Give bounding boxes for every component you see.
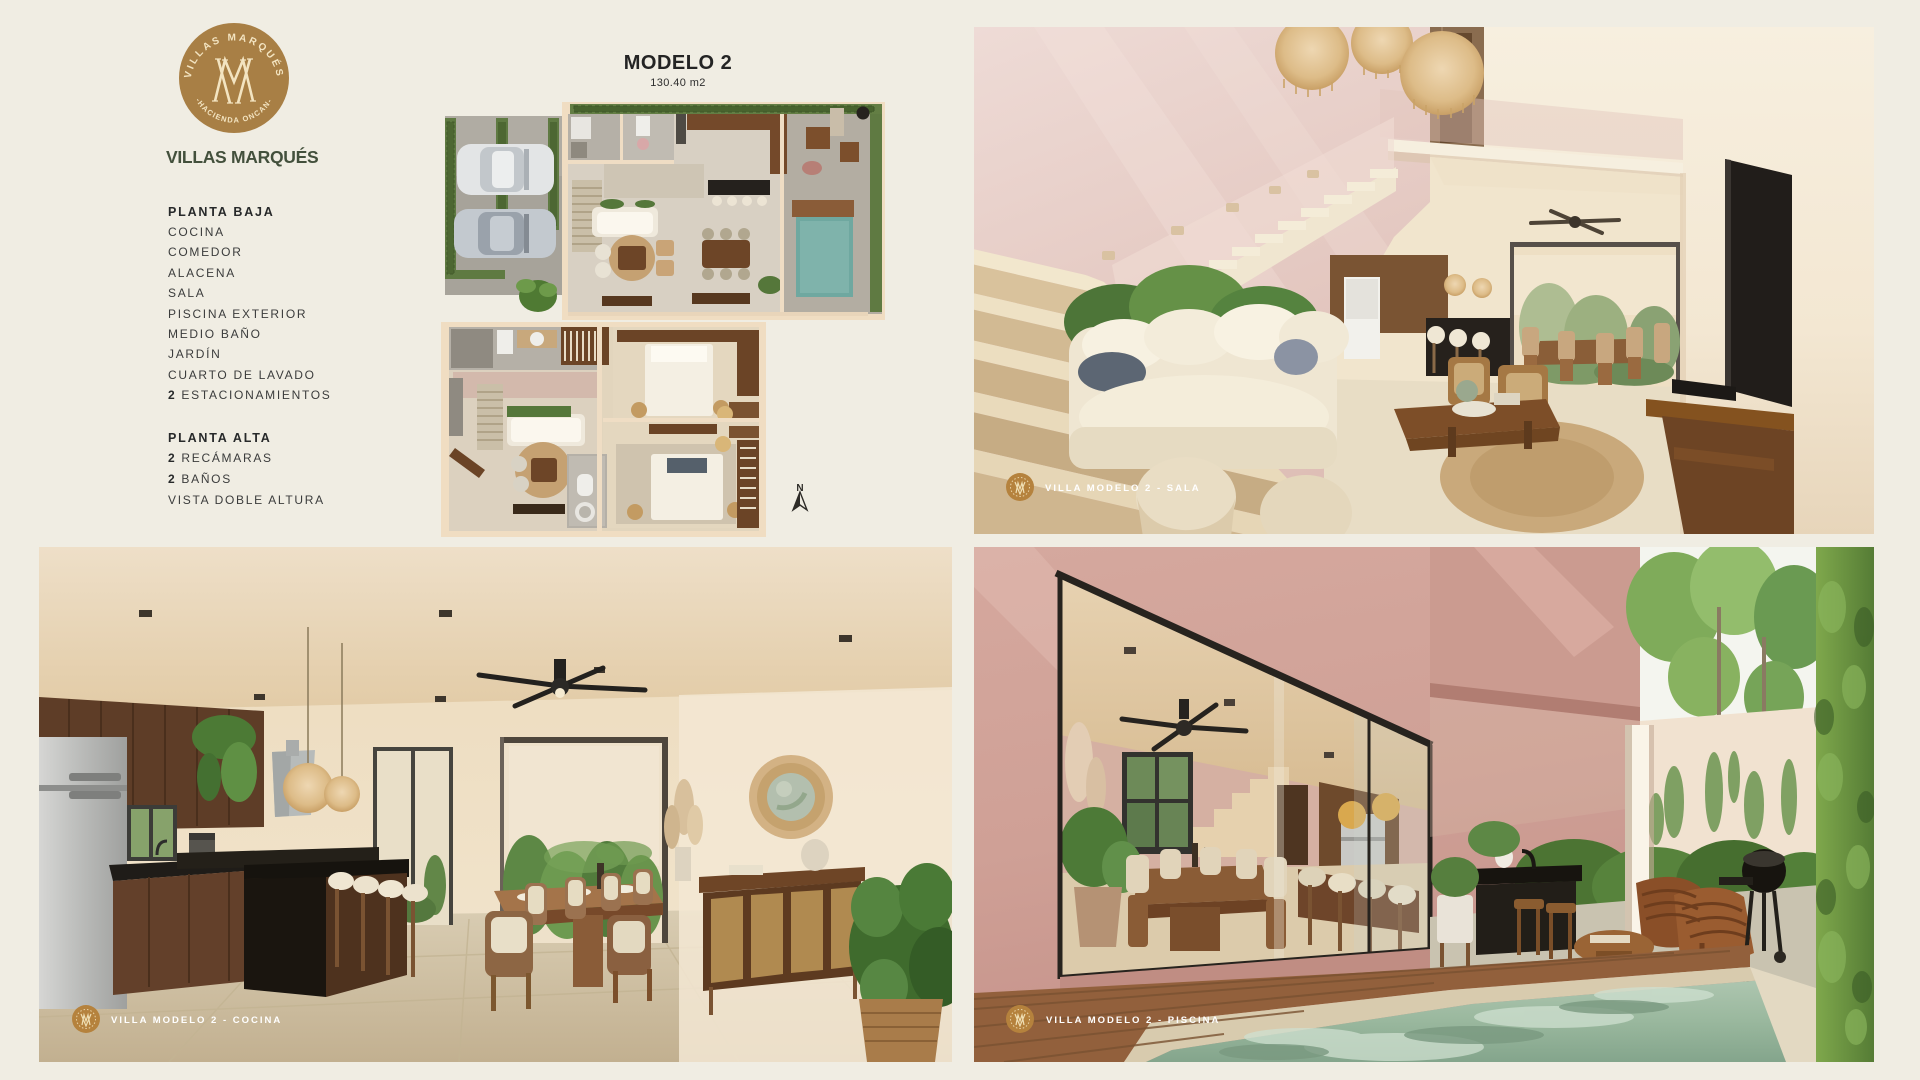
svg-text:VILLA MODELO 2 - SALA: VILLA MODELO 2 - SALA: [1045, 483, 1201, 494]
svg-text:VILLA MODELO 2 - PISCINA: VILLA MODELO 2 - PISCINA: [1046, 1015, 1220, 1026]
svg-text:VILLA MODELO 2 - COCINA: VILLA MODELO 2 - COCINA: [111, 1015, 282, 1026]
